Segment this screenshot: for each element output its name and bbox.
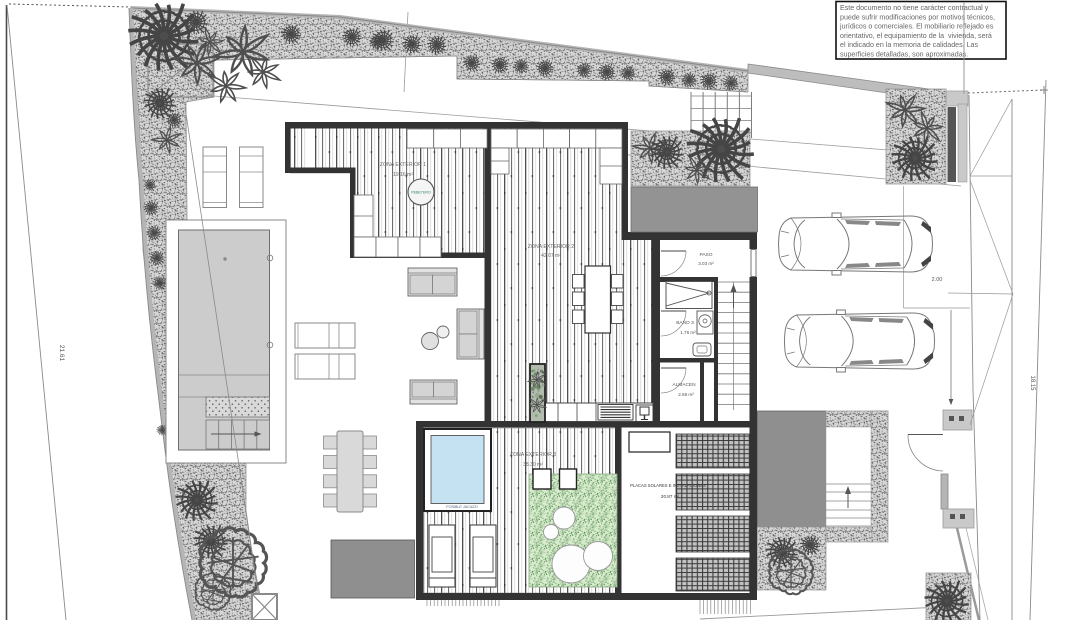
svg-text:3.03 m²: 3.03 m²	[698, 261, 714, 266]
svg-text:38.30 m²: 38.30 m²	[523, 462, 543, 468]
svg-text:PLACAS SOLARES E INSTALACIONES: PLACAS SOLARES E INSTALACIONES	[630, 483, 706, 488]
svg-text:POSIBLE JACUZZI: POSIBLE JACUZZI	[446, 505, 477, 509]
svg-text:ALMACEN: ALMACEN	[672, 382, 696, 388]
svg-text:21.61: 21.61	[58, 345, 65, 362]
svg-text:20.87 m²: 20.87 m²	[661, 494, 680, 499]
svg-text:BAÑO 3: BAÑO 3	[676, 319, 694, 326]
svg-text:42.07 m²: 42.07 m²	[541, 253, 561, 259]
svg-text:2.00: 2.00	[932, 277, 943, 283]
svg-text:2.58 m²: 2.58 m²	[678, 392, 694, 397]
svg-text:PEBETERO: PEBETERO	[411, 191, 431, 195]
svg-text:18.15: 18.15	[1029, 375, 1035, 391]
svg-text:19.16 m²: 19.16 m²	[393, 172, 413, 178]
svg-text:1.76 m²: 1.76 m²	[680, 330, 696, 335]
svg-text:ZONA EXTERIOR 1: ZONA EXTERIOR 1	[380, 162, 427, 168]
svg-text:ZONA EXTERIOR 2: ZONA EXTERIOR 2	[528, 244, 575, 250]
svg-text:PASO: PASO	[700, 252, 713, 258]
svg-text:ZONA EXTERIOR 3: ZONA EXTERIOR 3	[510, 452, 557, 458]
